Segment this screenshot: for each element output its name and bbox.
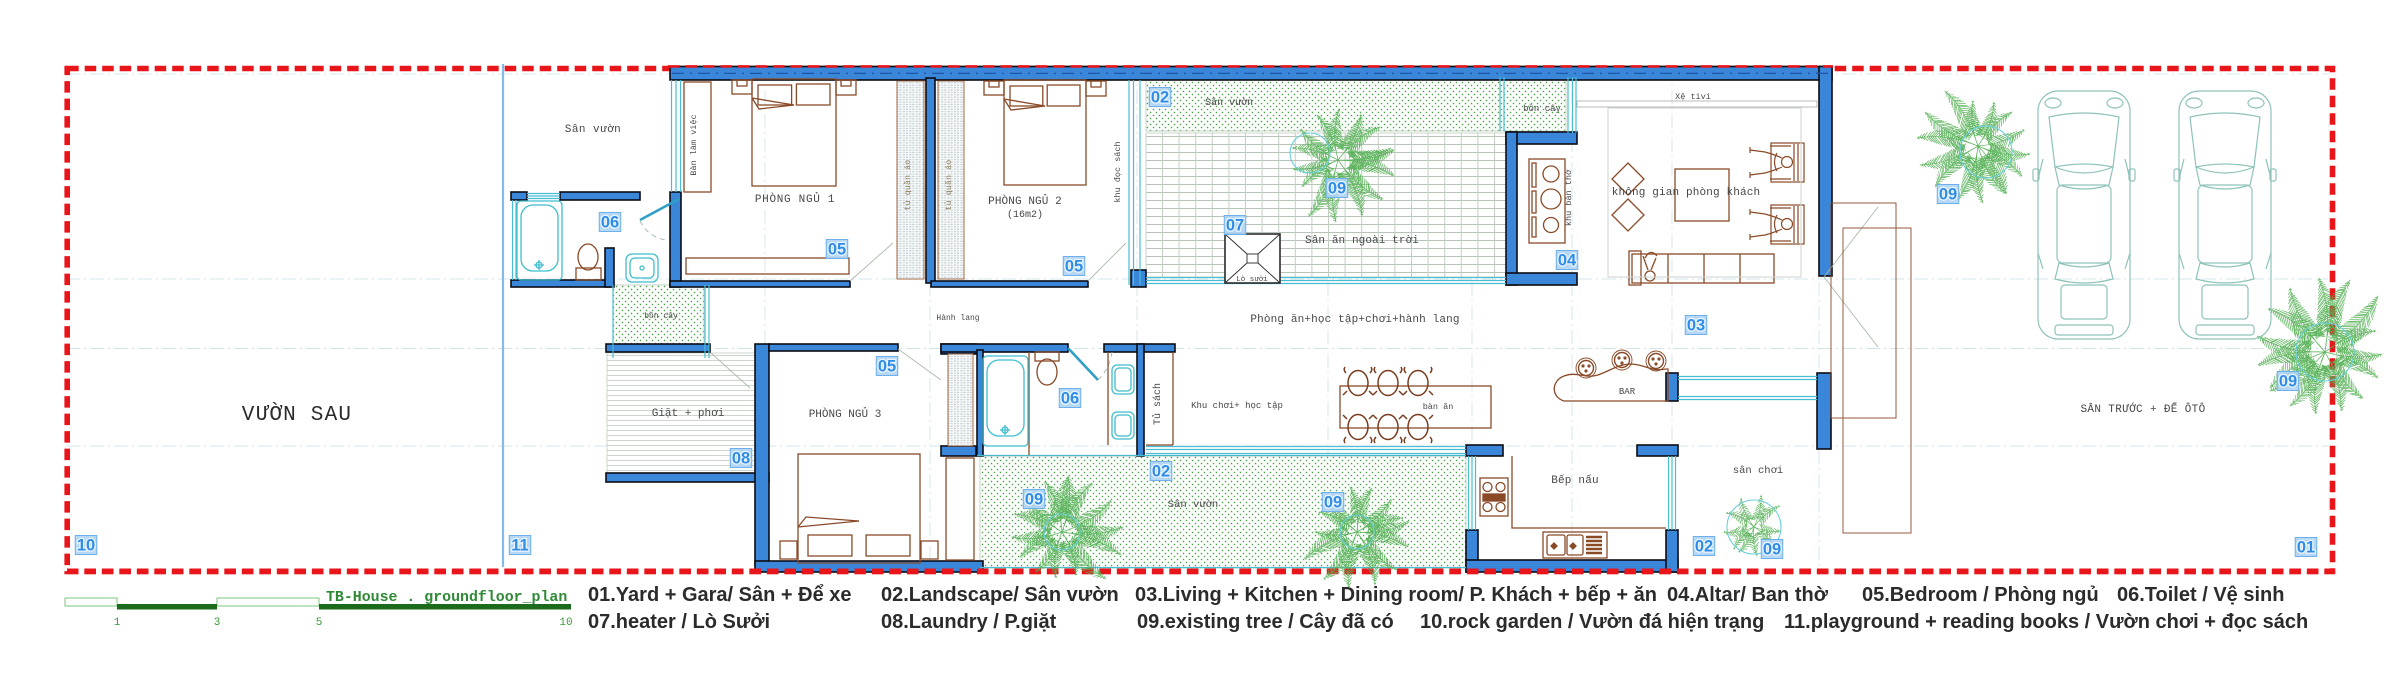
svg-text:Sân vườn: Sân vườn [1168, 499, 1218, 511]
svg-text:PHÒNG NGỦ 3: PHÒNG NGỦ 3 [809, 407, 882, 421]
svg-text:1: 1 [114, 617, 121, 629]
svg-text:09: 09 [1025, 491, 1043, 509]
svg-text:SÂN TRƯỚC + ĐỂ ÔTÔ: SÂN TRƯỚC + ĐỂ ÔTÔ [2080, 402, 2205, 416]
svg-text:08: 08 [732, 450, 750, 468]
svg-text:10.rock garden / Vườn đá hiện: 10.rock garden / Vườn đá hiện trạng [1420, 611, 1764, 633]
svg-text:3: 3 [214, 617, 221, 629]
svg-text:09: 09 [1763, 541, 1781, 559]
svg-text:06: 06 [601, 214, 619, 232]
svg-text:06.Toilet / Vệ sinh: 06.Toilet / Vệ sinh [2117, 584, 2284, 606]
svg-text:Lò sưởi: Lò sưởi [1236, 275, 1268, 284]
svg-text:tủ quần áo: tủ quần áo [903, 159, 913, 210]
svg-text:bàn ăn: bàn ăn [1423, 402, 1454, 412]
svg-text:04: 04 [1558, 252, 1577, 270]
svg-text:09: 09 [2279, 373, 2297, 391]
svg-text:09.existing tree / Cây đã có: 09.existing tree / Cây đã có [1137, 611, 1394, 633]
svg-text:11: 11 [511, 537, 528, 555]
svg-text:08.Laundry / P.giặt: 08.Laundry / P.giặt [881, 611, 1057, 633]
svg-text:PHÒNG NGỦ 2: PHÒNG NGỦ 2 [988, 194, 1062, 208]
svg-text:04.Altar/ Ban thờ: 04.Altar/ Ban thờ [1667, 584, 1829, 606]
svg-text:không gian phòng khách: không gian phòng khách [1612, 187, 1761, 199]
svg-text:PHÒNG NGỦ 1: PHÒNG NGỦ 1 [755, 192, 835, 206]
svg-text:Sân ăn ngoài trời: Sân ăn ngoài trời [1305, 235, 1419, 247]
svg-text:07: 07 [1226, 217, 1244, 235]
svg-text:Bếp nấu: Bếp nấu [1551, 474, 1599, 487]
svg-text:06: 06 [1061, 390, 1079, 408]
svg-text:Sân vườn: Sân vườn [1205, 97, 1253, 109]
svg-text:(16m2): (16m2) [1007, 209, 1043, 221]
svg-text:09: 09 [1939, 186, 1957, 204]
svg-text:05.Bedroom / Phòng ngủ: 05.Bedroom / Phòng ngủ [1862, 584, 2099, 606]
svg-text:11.playground + reading books: 11.playground + reading books / Vườn chơ… [1784, 611, 2308, 633]
svg-text:10: 10 [559, 617, 572, 629]
svg-text:VƯỜN SAU: VƯỜN SAU [242, 403, 352, 427]
svg-text:khu đọc sách: khu đọc sách [1113, 141, 1123, 202]
svg-text:03.Living + Kitchen + Dining r: 03.Living + Kitchen + Dining room/ P. Kh… [1135, 584, 1657, 606]
svg-text:5: 5 [316, 617, 323, 629]
svg-text:02.Landscape/ Sân vườn: 02.Landscape/ Sân vườn [881, 584, 1119, 606]
svg-text:07.heater / Lò Sưởi: 07.heater / Lò Sưởi [588, 611, 770, 633]
svg-text:TB-House . groundfloor_plan: TB-House . groundfloor_plan [326, 590, 567, 606]
svg-text:bồn cây: bồn cây [1523, 104, 1561, 114]
svg-text:Giặt + phơi: Giặt + phơi [652, 408, 725, 420]
svg-text:02: 02 [1152, 463, 1170, 481]
svg-text:Tủ sách: Tủ sách [1151, 383, 1164, 425]
svg-text:Khu chơi+ học tập: Khu chơi+ học tập [1191, 401, 1283, 411]
svg-text:09: 09 [1328, 180, 1346, 198]
svg-text:05: 05 [878, 358, 896, 376]
svg-text:khu bàn thờ: khu bàn thờ [1564, 169, 1574, 226]
svg-text:Phòng ăn+học tập+chơi+hành lan: Phòng ăn+học tập+chơi+hành lang [1250, 314, 1459, 326]
svg-text:BAR: BAR [1619, 387, 1636, 397]
svg-text:03: 03 [1687, 317, 1705, 335]
svg-text:05: 05 [1065, 258, 1083, 276]
svg-text:Xệ tivi: Xệ tivi [1675, 92, 1711, 102]
svg-text:01: 01 [2297, 539, 2315, 557]
svg-text:02: 02 [1151, 89, 1169, 107]
svg-text:05: 05 [828, 241, 846, 259]
svg-text:bồn cây: bồn cây [644, 311, 678, 321]
svg-text:10: 10 [77, 537, 95, 555]
svg-text:01.Yard + Gara/ Sân + Để xe: 01.Yard + Gara/ Sân + Để xe [588, 584, 852, 606]
svg-text:Hành lang: Hành lang [936, 314, 979, 323]
svg-text:tủ quần áo: tủ quần áo [944, 159, 954, 210]
svg-text:sân chơi: sân chơi [1733, 465, 1783, 477]
svg-text:09: 09 [1324, 494, 1342, 512]
svg-text:02: 02 [1695, 538, 1713, 556]
svg-text:Bàn làm việc: Bàn làm việc [689, 114, 699, 175]
svg-text:Sân vườn: Sân vườn [565, 124, 621, 136]
